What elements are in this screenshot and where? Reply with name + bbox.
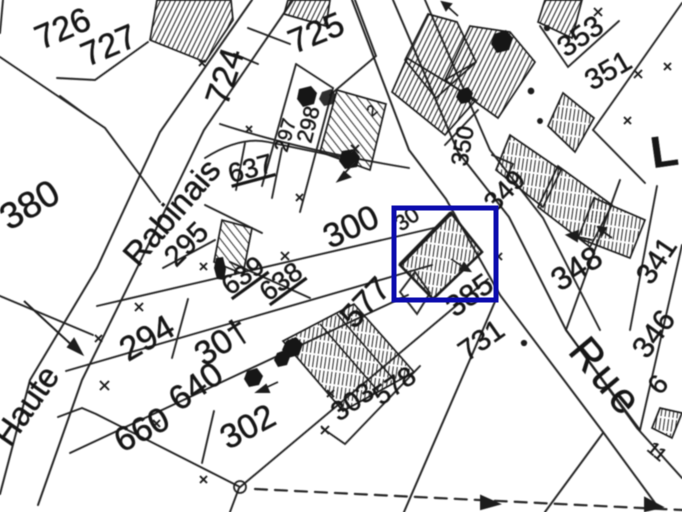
svg-text:300: 300 [317,198,384,256]
svg-text:380: 380 [0,172,66,238]
svg-text:Haute: Haute [0,359,66,452]
svg-text:351: 351 [580,45,638,97]
svg-text:348: 348 [544,239,608,298]
svg-text:302: 302 [214,397,282,457]
svg-text:350: 350 [446,124,480,168]
svg-text:346: 346 [626,304,682,364]
svg-text:637: 637 [225,148,276,189]
svg-text:L: L [648,126,681,178]
svg-text:294: 294 [113,308,181,369]
